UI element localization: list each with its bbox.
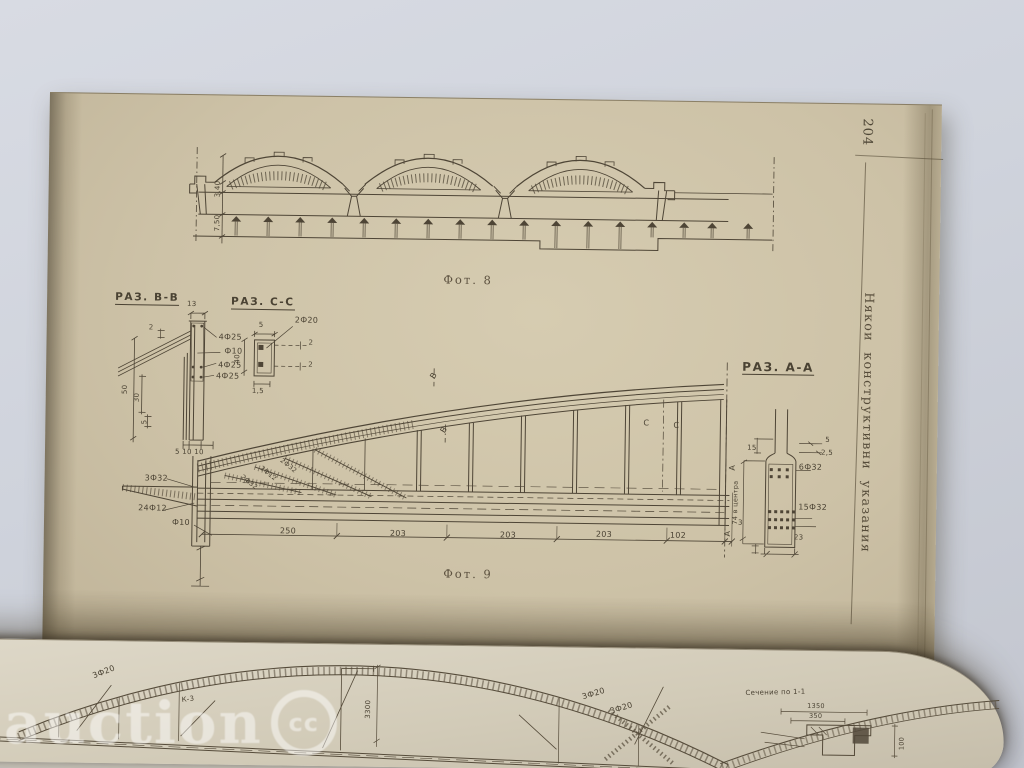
dim-label: 50: [122, 385, 129, 395]
dim-label: 102: [670, 532, 686, 540]
dim-label: 13: [187, 301, 197, 308]
dim-label: 5 10 10: [175, 449, 204, 456]
dim-label: 5: [259, 322, 264, 329]
section-cc-title: РАЗ. С-С: [231, 297, 295, 310]
dim-label: 5: [141, 420, 148, 425]
dim-label: 15: [747, 445, 757, 452]
dim-label: 5: [825, 437, 830, 444]
book-page-upper: 204 Някои конструктивни указания Фот. 8 …: [42, 92, 942, 671]
dim-label: 23: [794, 534, 804, 541]
dim-label: 203: [390, 530, 406, 538]
dim-label: 1350: [807, 703, 825, 710]
rebar-label: Ф10: [172, 519, 190, 527]
dim-label: 1,5: [252, 388, 264, 395]
section-marker-c: С: [673, 422, 679, 430]
fig8-linework: [189, 147, 774, 252]
rebar-label: 15Ф32: [798, 503, 827, 511]
y-column: [342, 184, 365, 216]
rebar-label: 6Ф32: [799, 463, 822, 471]
section-marker-a: А: [724, 531, 732, 537]
rebar-label: 3Ф32: [145, 474, 168, 482]
section-aa-title: РАЗ. А-А: [742, 361, 814, 376]
dim-label: 3: [738, 520, 743, 527]
auction-watermark: auction cc: [4, 690, 337, 756]
rebar-label: 24Ф12: [138, 504, 167, 512]
rebar-label: 4Ф25: [216, 372, 239, 380]
fig8-dim: 7,50: [214, 215, 221, 232]
section-aa-linework: [740, 409, 823, 558]
section-bb-title: РАЗ. В-В: [115, 292, 179, 305]
margin-caption: Някои конструктивни указания: [859, 292, 875, 553]
dim-label: 250: [280, 527, 296, 535]
dim-label: 3300: [365, 700, 372, 719]
section-marker-c: С: [643, 419, 649, 427]
dim-label: 203: [500, 531, 516, 539]
book-photo: 204 Някои конструктивни указания Фот. 8 …: [0, 0, 1024, 768]
dim-label: 2: [149, 324, 154, 331]
dim-label: 2,5: [821, 450, 833, 457]
page-number: 204: [860, 118, 873, 146]
dim-label: 203: [596, 531, 612, 539]
detail-title: Сечение по 1-1: [745, 689, 805, 697]
rebar-dots: [768, 468, 796, 529]
fig8-caption: Фот. 8: [443, 275, 493, 287]
rebar-label: 4Ф25: [219, 333, 242, 341]
fig8-dim: 3,40: [215, 181, 222, 198]
rebar-label: 2Ф20: [295, 316, 318, 324]
dim-label: 2: [308, 362, 313, 369]
dim-label: 30: [134, 393, 141, 403]
dim-label: 2: [308, 340, 313, 347]
dim-label: 350: [809, 713, 822, 720]
fig9-drawing: [63, 333, 867, 634]
fig9-caption: Фот. 9: [443, 569, 493, 581]
fig9-linework: [121, 354, 737, 594]
dim-label: 40: [234, 354, 241, 364]
dim-label: 100: [899, 737, 906, 750]
watermark-text: auction: [4, 694, 263, 752]
cc-badge-icon: cc: [271, 690, 337, 756]
section-marker-a: А: [729, 465, 737, 471]
y-column: [493, 186, 516, 218]
